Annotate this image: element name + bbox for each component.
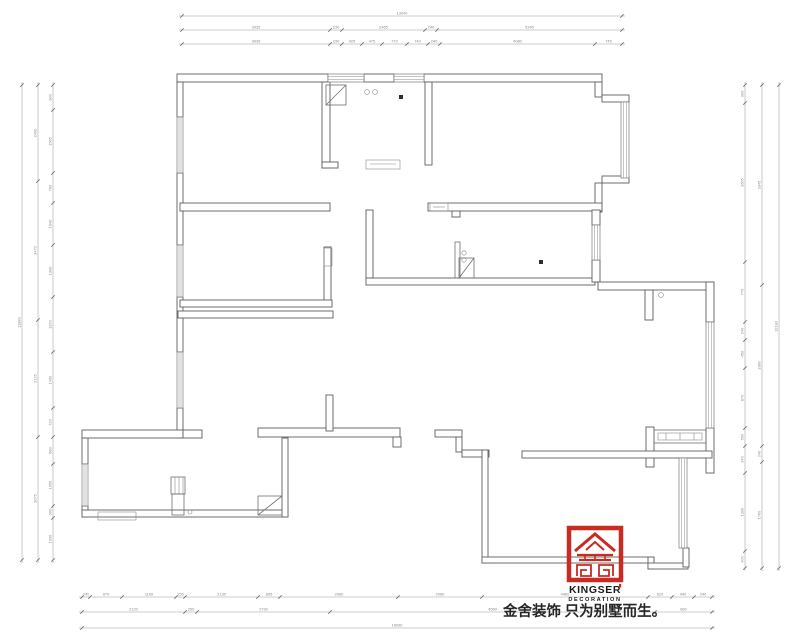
dimension-label: 1980 [756, 360, 761, 369]
hookup-circle [365, 90, 370, 95]
floor-drain [399, 95, 403, 99]
dimension-label: 240 [83, 591, 90, 596]
dimension-label: 5245 [525, 24, 534, 29]
dimension-label: 230 [333, 24, 340, 29]
dimension-line: 13040 [179, 10, 625, 17]
dimension-label: 3345 [756, 181, 761, 190]
dimension-label: 3935 [252, 38, 261, 43]
dimension-label: 1370 [47, 319, 52, 328]
wall-segment [602, 95, 629, 102]
wall-segment [452, 211, 460, 217]
dimension-label: 740 [414, 38, 421, 43]
wall-segment [180, 203, 330, 211]
dimension-label: 3075 [32, 494, 37, 503]
window-symbol [394, 74, 424, 82]
wall-segment [326, 395, 333, 431]
door-knob-circle [462, 251, 466, 255]
wall-segment [592, 260, 600, 282]
dimension-label: 970 [103, 591, 110, 596]
dimension-line: 2400347021253075 [32, 82, 39, 563]
brand-slogan: 金舍装饰 只为别墅而生。 [502, 602, 666, 620]
wall-segment [595, 82, 602, 97]
wall-segment [324, 247, 331, 305]
dimension-label: 680 [47, 446, 52, 453]
hookup-circle [373, 90, 378, 95]
floor-plan-page: 1304039352302465240524539352304254757707… [0, 0, 800, 640]
wall-segment [180, 300, 332, 307]
window-symbol [82, 464, 88, 506]
dimension-line: 9001565760104013001370140072068010503001… [47, 82, 54, 563]
window-symbol [592, 225, 600, 260]
dimension-label: 240 [700, 591, 707, 596]
dimension-label: 13040 [397, 10, 409, 15]
wall-segment [82, 510, 288, 517]
dimension-label: 250 [188, 606, 195, 611]
dimension-line: 334519802401760 [756, 82, 763, 571]
door-symbol-bottom-left [171, 477, 192, 515]
door-symbol-kitchen [455, 242, 474, 278]
dimension-label: 240 [431, 38, 438, 43]
dimension-label: 900 [47, 93, 52, 100]
wall-segment [393, 437, 401, 447]
dimension-label: 12180 [773, 320, 778, 332]
wall-segment [282, 438, 288, 517]
wall-segment [645, 290, 653, 320]
dimension-label: 240 [739, 455, 744, 462]
dimension-label: 3935 [252, 24, 261, 29]
dimension-label: 760 [47, 184, 52, 191]
dimension-label: 2605 [739, 178, 744, 187]
dimension-label: 16090 [392, 622, 404, 627]
dimension-label: 2730 [259, 606, 268, 611]
wall-segment [598, 282, 712, 290]
dimension-label: 1050 [47, 534, 52, 543]
wall-segment [456, 437, 462, 452]
window-symbol [177, 245, 183, 297]
wall-segment [706, 282, 714, 322]
wall-segment [435, 430, 462, 437]
wall-segment [366, 210, 373, 278]
dimension-label: 500 [739, 433, 744, 440]
dimension-line: 39352304254757707402404080745 [179, 38, 625, 45]
wall-segment [522, 451, 712, 458]
dimension-label: 440 [680, 591, 687, 596]
dimension-label: 1040 [47, 219, 52, 228]
wall-segment [183, 430, 202, 438]
brand-subtitle: DECORATION [568, 597, 621, 603]
floor-plan-canvas: 1304039352302465240524539352304254757707… [0, 0, 800, 640]
dimension-label: 2135 [217, 591, 226, 596]
threshold-symbol [366, 160, 400, 169]
dimension-label: 2120 [129, 606, 138, 611]
dimension-label: 2060 [436, 591, 445, 596]
wall-segment [425, 82, 432, 165]
wall-segment [322, 162, 338, 168]
dimension-label: 450 [739, 350, 744, 357]
dimension-label: 2465 [379, 24, 388, 29]
dimension-label: 4560 [488, 606, 497, 611]
floor-drain [539, 260, 543, 264]
wall-segment [482, 450, 488, 563]
dimension-label: 620 [657, 591, 664, 596]
dimension-label: 11880 [16, 316, 21, 327]
door-knob-circle [462, 258, 466, 262]
dimension-label: 1190 [145, 591, 154, 596]
dimension-label: 2125 [32, 374, 37, 383]
brand-name: KINGSER [569, 584, 621, 596]
window-symbol [679, 458, 687, 548]
dimension-label: 425 [349, 38, 356, 43]
dimension-label: 300 [47, 508, 52, 515]
window-symbol [621, 102, 629, 178]
window-symbol [328, 74, 364, 82]
wall-segment [364, 74, 394, 82]
threshold-box [366, 160, 400, 169]
wall-segment [178, 311, 333, 318]
dimension-label: 1050 [47, 480, 52, 489]
dimension-label: 1400 [47, 375, 52, 384]
window-symbol [177, 117, 183, 173]
dimension-label: 1565 [47, 137, 52, 146]
brand-logo: KINGSER DECORATION [568, 528, 621, 603]
dimension-label: 1300 [739, 507, 744, 516]
dimension-label: 1760 [756, 510, 761, 519]
dimension-line: 11880 [16, 82, 23, 563]
dimension-line: 16090 [79, 622, 715, 629]
dimension-label: 680 [680, 606, 687, 611]
dimension-line: 12180 [773, 82, 780, 571]
wall-segment [177, 82, 183, 117]
dimension-label: 475 [369, 38, 376, 43]
hookup-circle [659, 293, 664, 298]
dimension-label: 400 [739, 555, 744, 562]
window-symbol [706, 322, 714, 428]
dimension-label: 605 [266, 591, 273, 596]
dimension-label: 2960 [335, 591, 344, 596]
dimension-label: 240 [756, 450, 761, 457]
dimension-label: 240 [739, 327, 744, 334]
wall-segment [646, 427, 654, 467]
dimension-label: 770 [391, 38, 398, 43]
wall-segment [706, 428, 714, 473]
dimension-label: 1300 [47, 266, 52, 275]
logo-spiral-right [599, 565, 613, 576]
wall-segment [177, 74, 328, 82]
logo-roof-inner [586, 542, 604, 550]
dimension-label: 870 [739, 394, 744, 401]
door-swing [459, 258, 474, 278]
dimension-label: 230 [333, 38, 340, 43]
wall-segment [648, 563, 688, 569]
dimension-label: 2400 [32, 128, 37, 137]
window-symbol [177, 352, 183, 408]
wall-segment [424, 74, 602, 82]
dimension-label: 4080 [513, 38, 522, 43]
wall-segment [683, 548, 689, 567]
wall-segment [366, 278, 595, 285]
dimension-label: 3470 [32, 245, 37, 254]
dimension-line: 393523024652405245 [179, 24, 625, 31]
dimension-line: 30026057702404508705002401300400 [739, 82, 746, 571]
wall-segment [82, 430, 183, 438]
dimension-label: 720 [47, 418, 52, 425]
wall-segment [428, 203, 602, 211]
brand-mark [619, 584, 621, 588]
dimension-label: 300 [739, 90, 744, 97]
dimension-label: 250 [177, 591, 184, 596]
dimension-layer: 1304039352302465240524539352304254757707… [16, 10, 780, 629]
radiator-symbol [654, 430, 706, 443]
dimension-label: 770 [739, 288, 744, 295]
logo-spiral-left [577, 565, 591, 576]
wall-segment [82, 438, 88, 464]
dimension-label: 240 [428, 24, 435, 29]
wall-segment [592, 210, 600, 225]
dimension-label: 745 [605, 38, 612, 43]
